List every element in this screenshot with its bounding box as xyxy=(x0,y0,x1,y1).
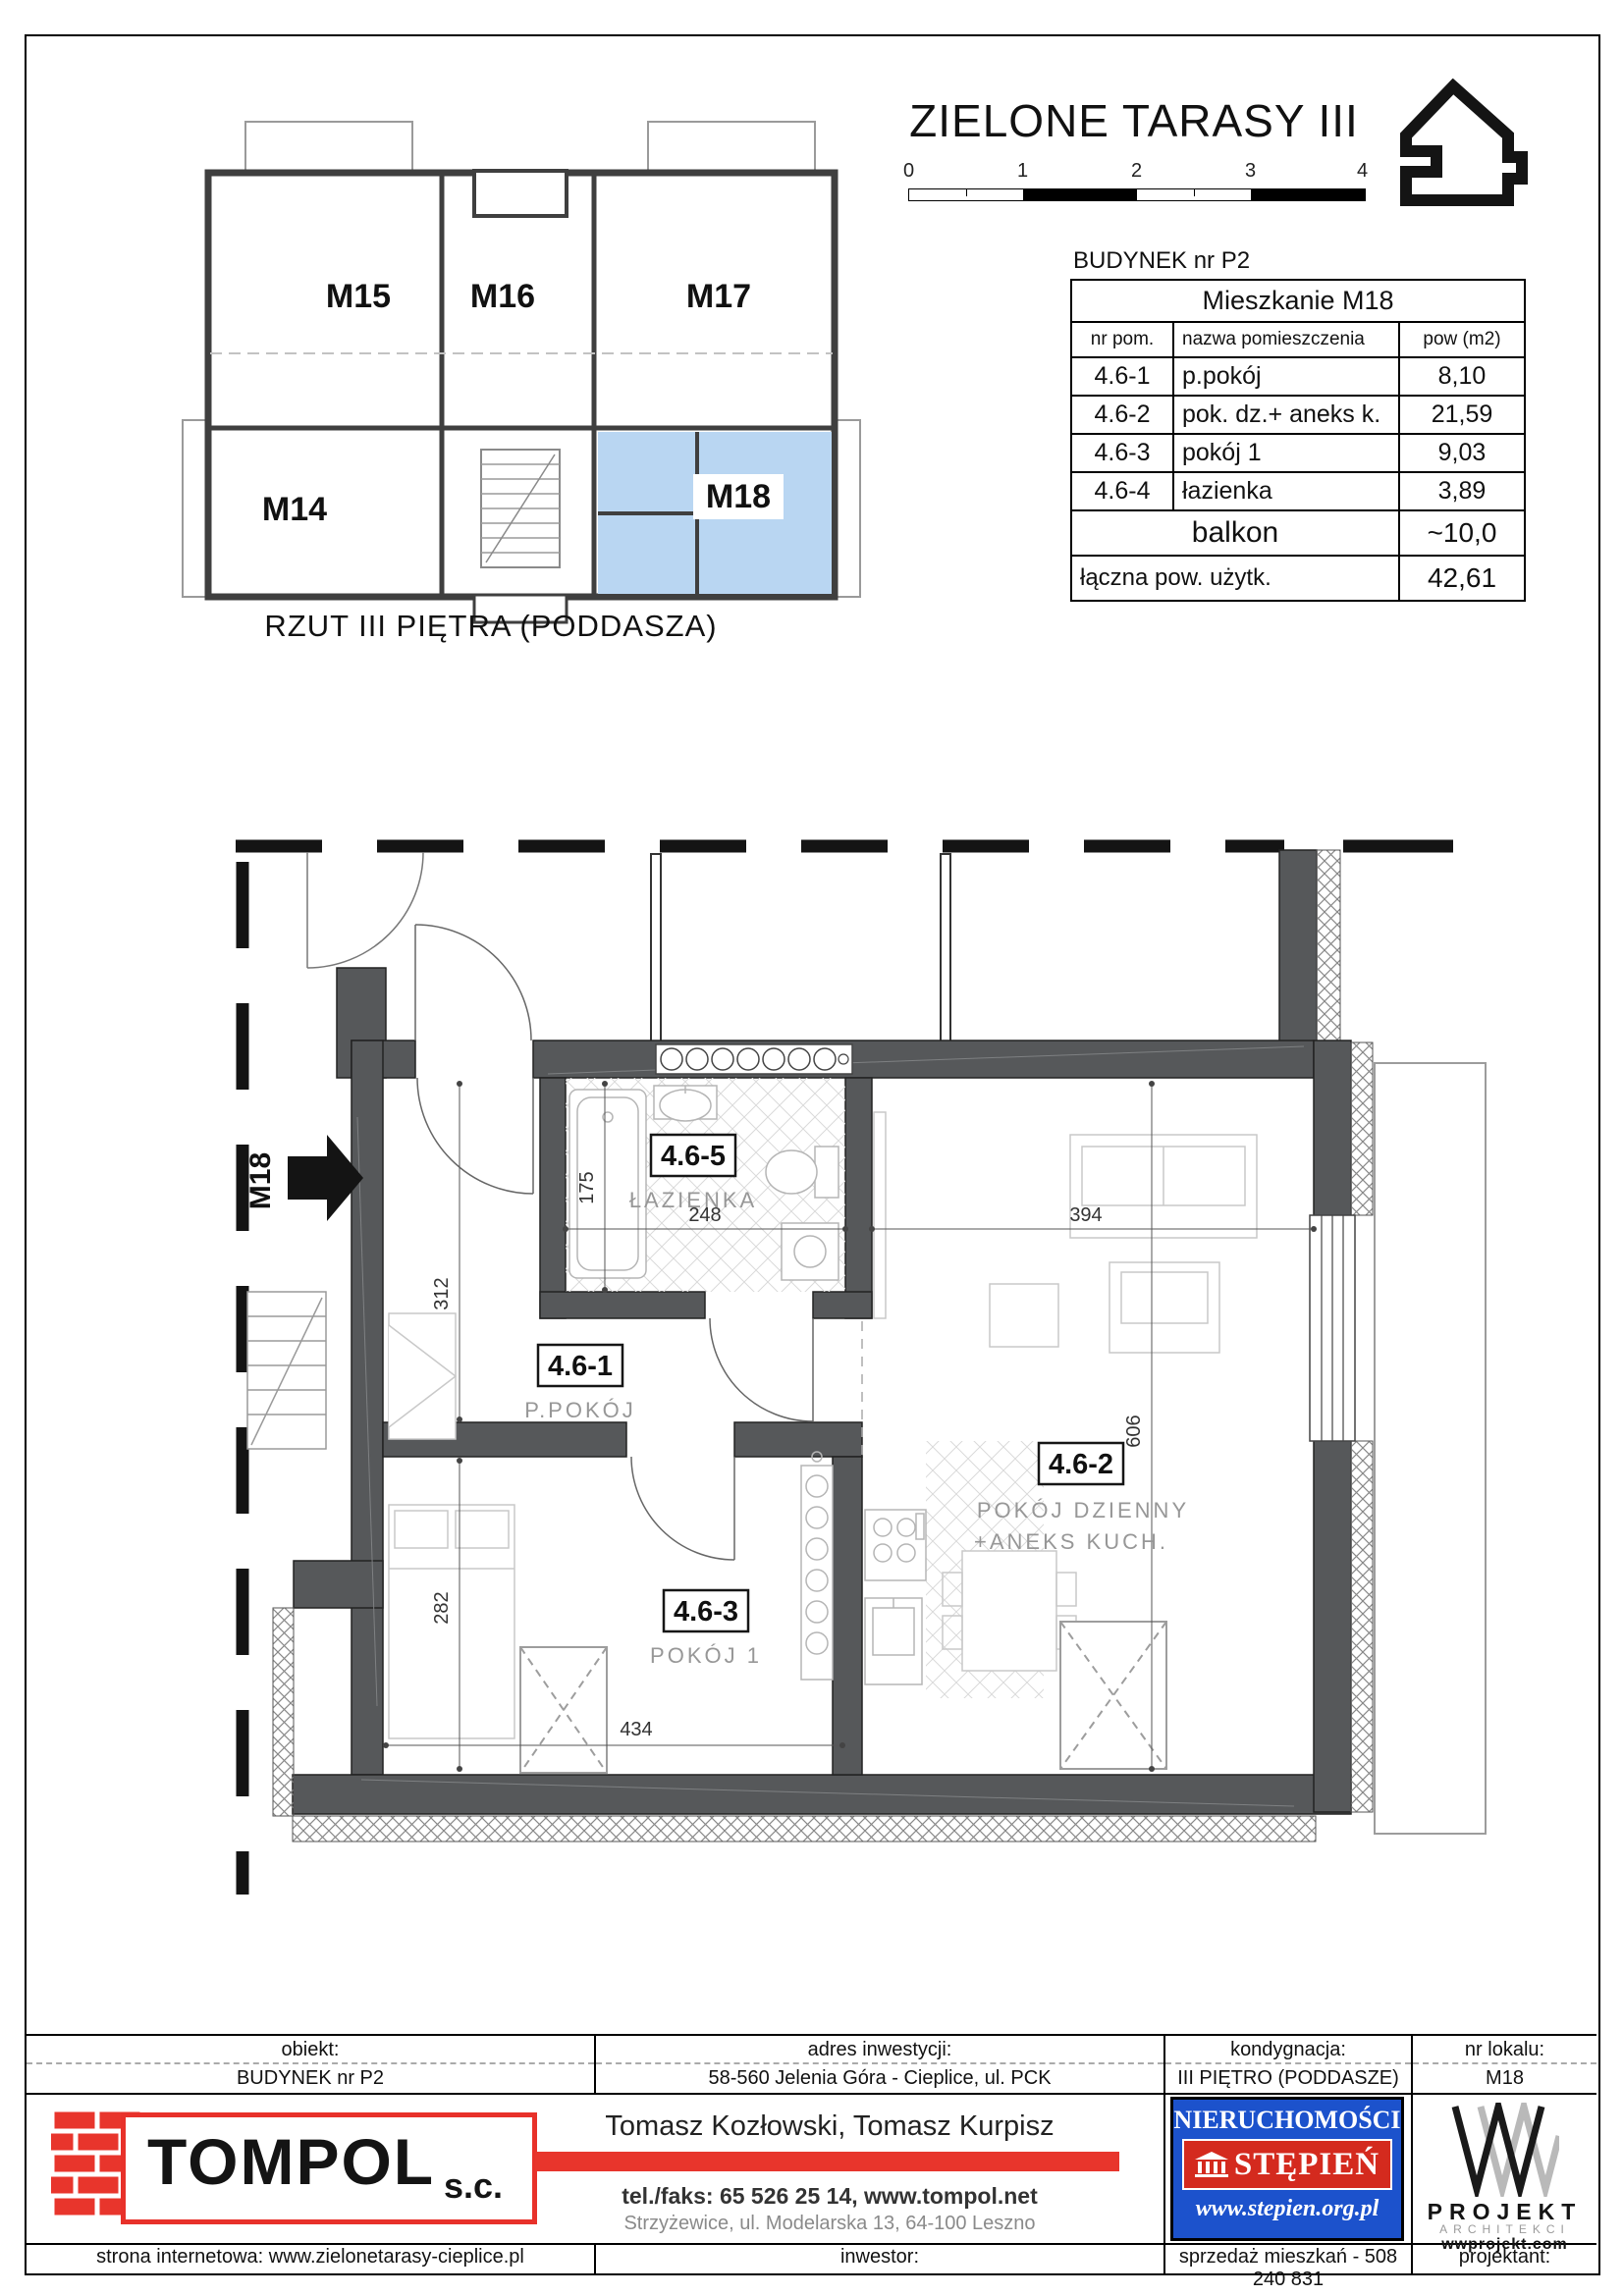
table-row: 4.6-3 pokój 1 9,03 xyxy=(1071,434,1525,472)
coffee-table xyxy=(990,1284,1058,1347)
scale-seg xyxy=(1024,189,1138,200)
stepien-logo: NIERUCHOMOŚCI STĘPIEŃ www.stepien.org.pl xyxy=(1170,2097,1404,2241)
footer-website: strona internetowa: www.zielonetarasy-ci… xyxy=(27,2246,594,2269)
balcony-window xyxy=(1310,1215,1355,1441)
hall-wardrobe xyxy=(389,1313,456,1439)
tompol-suffix: s.c. xyxy=(444,2165,503,2207)
field-obiekt-value: BUDYNEK nr P2 xyxy=(27,2067,594,2090)
overview-floorplan: M15 M16 M17 M14 M18 xyxy=(147,96,893,631)
cell-balkon-area: ~10,0 xyxy=(1399,510,1525,556)
footer-projektant: projektant: xyxy=(1413,2246,1596,2269)
dining-table xyxy=(943,1551,1076,1671)
stepien-url: www.stepien.org.pl xyxy=(1173,2196,1401,2222)
table-row: 4.6-2 pok. dz.+ aneks k. 21,59 xyxy=(1071,396,1525,434)
table-row: 4.6-1 p.pokój 8,10 xyxy=(1071,357,1525,396)
kitchen-sink xyxy=(865,1598,922,1684)
washbasin xyxy=(654,1086,717,1121)
wprojekt-sub: ARCHITEKCI xyxy=(1411,2222,1598,2236)
stepien-line2: STĘPIEŃ xyxy=(1234,2147,1380,2183)
room-name: +ANEKS KUCH. xyxy=(974,1529,1168,1554)
company-owners: Tomasz Kozłowski, Tomasz Kurpisz xyxy=(550,2110,1109,2143)
field-lokal-label: nr lokalu: xyxy=(1413,2039,1596,2061)
hob xyxy=(865,1510,926,1580)
stairwell xyxy=(247,1292,326,1449)
col-header-name: nazwa pomieszczenia xyxy=(1173,322,1399,357)
building-caption: BUDYNEK nr P2 xyxy=(1073,247,1250,275)
tall-cabinets xyxy=(801,1452,833,1680)
toilet xyxy=(766,1147,839,1198)
dim-hall-h: 312 xyxy=(431,1277,453,1309)
footer-inwestor: inwestor: xyxy=(596,2246,1163,2269)
room-code: 4.6-5 xyxy=(661,1141,726,1172)
room-name: POKÓJ 1 xyxy=(650,1643,762,1668)
bathroom-radiator xyxy=(656,1044,852,1074)
field-kondygnacja-value: III PIĘTRO (PODDASZE) xyxy=(1165,2067,1411,2090)
room-name: ŁAZIENKA xyxy=(629,1188,757,1212)
field-obiekt-label: obiekt: xyxy=(27,2039,594,2061)
washing-machine xyxy=(782,1223,839,1280)
living-wardrobe xyxy=(1060,1622,1166,1769)
cell-name: łazienka xyxy=(1173,472,1399,510)
entry-arrow-label: M18 xyxy=(244,1152,277,1209)
apartment-table: Mieszkanie M18 nr pom. nazwa pomieszczen… xyxy=(1070,279,1526,602)
table-title: Mieszkanie M18 xyxy=(1071,280,1525,322)
scale-seg xyxy=(1252,189,1366,200)
table-row-total: łączna pow. użytk. 42,61 xyxy=(1071,556,1525,601)
table-row-balcony: balkon ~10,0 xyxy=(1071,510,1525,556)
room-label-room1: 4.6-3 POKÓJ 1 xyxy=(650,1590,762,1668)
room-code: 4.6-2 xyxy=(1049,1449,1113,1480)
overview-caption: RZUT III PIĘTRA (PODDASZA) xyxy=(226,609,756,644)
overview-label-m15: M15 xyxy=(326,278,391,315)
red-divider-bar xyxy=(535,2152,1119,2171)
room-code: 4.6-1 xyxy=(548,1351,613,1382)
wprojekt-name: PROJEKT xyxy=(1411,2199,1598,2225)
col-header-nr: nr pom. xyxy=(1071,322,1173,357)
cell-name: p.pokój xyxy=(1173,357,1399,396)
scale-tick-1: 1 xyxy=(1017,160,1028,183)
wprojekt-icon xyxy=(1451,2103,1559,2197)
room-name: POKÓJ DZIENNY xyxy=(977,1498,1189,1522)
col-header-area: pow (m2) xyxy=(1399,322,1525,357)
stepien-line1: NIERUCHOMOŚCI xyxy=(1173,2106,1401,2135)
room-code: 4.6-3 xyxy=(674,1596,738,1628)
house-icon xyxy=(1382,79,1530,211)
cell-area: 3,89 xyxy=(1399,472,1525,510)
table-row: 4.6-4 łazienka 3,89 xyxy=(1071,472,1525,510)
tompol-name: TOMPOL xyxy=(147,2124,435,2199)
field-lokal-value: M18 xyxy=(1413,2067,1596,2090)
room1-door xyxy=(631,1457,734,1560)
company-address: Strzyżewice, ul. Modelarska 13, 64-100 L… xyxy=(550,2213,1109,2235)
main-floorplan: M18 xyxy=(214,823,1490,1907)
cell-area: 21,59 xyxy=(1399,396,1525,434)
field-kondygnacja-label: kondygnacja: xyxy=(1165,2039,1411,2061)
tv-panel xyxy=(874,1112,886,1318)
scale-bar xyxy=(908,188,1366,201)
bathroom-door xyxy=(710,1318,813,1421)
room-name: P.POKÓJ xyxy=(524,1398,636,1422)
overview-label-m17: M17 xyxy=(686,278,751,315)
field-adres-value: 58-560 Jelenia Góra - Cieplice, ul. PCK xyxy=(596,2067,1163,2090)
armchair xyxy=(1109,1262,1219,1353)
footer-sales: sprzedaż mieszkań - 508 240 831 xyxy=(1165,2246,1411,2291)
dim-living-w: 394 xyxy=(1069,1204,1102,1226)
cell-nr: 4.6-2 xyxy=(1071,396,1173,434)
stepien-building-icon xyxy=(1195,2152,1228,2177)
cell-area: 9,03 xyxy=(1399,434,1525,472)
overview-label-m16: M16 xyxy=(470,278,535,315)
overview-label-m18: M18 xyxy=(706,478,771,515)
dim-room1-w: 434 xyxy=(620,1719,652,1740)
cell-total-label: łączna pow. użytk. xyxy=(1071,556,1399,601)
plan-sheet: ZIELONE TARASY III 0 1 2 3 4 xyxy=(0,0,1623,2296)
cell-total-area: 42,61 xyxy=(1399,556,1525,601)
company-phone: tel./faks: 65 526 25 14, www.tompol.net xyxy=(550,2183,1109,2210)
cell-area: 8,10 xyxy=(1399,357,1525,396)
cell-name: pokój 1 xyxy=(1173,434,1399,472)
scale-tick-4: 4 xyxy=(1357,160,1368,183)
entry-arrow: M18 xyxy=(244,1135,363,1221)
balcony-outline xyxy=(1375,1063,1486,1834)
cell-balkon: balkon xyxy=(1071,510,1399,556)
dim-living-h: 606 xyxy=(1123,1415,1145,1447)
cell-nr: 4.6-4 xyxy=(1071,472,1173,510)
cell-nr: 4.6-1 xyxy=(1071,357,1173,396)
cell-nr: 4.6-3 xyxy=(1071,434,1173,472)
dim-room1-h: 282 xyxy=(431,1591,453,1624)
corridor-door xyxy=(307,852,423,968)
cell-name: pok. dz.+ aneks k. xyxy=(1173,396,1399,434)
scale-tick-0: 0 xyxy=(903,160,914,183)
room-label-hall: 4.6-1 P.POKÓJ xyxy=(524,1345,636,1422)
dim-bath-h: 175 xyxy=(576,1171,598,1203)
scale-tick-2: 2 xyxy=(1131,160,1142,183)
scale-seg xyxy=(909,189,1024,200)
scale-tick-3: 3 xyxy=(1245,160,1256,183)
field-adres-label: adres inwestycji: xyxy=(596,2039,1163,2061)
room1-wardrobe xyxy=(520,1647,607,1773)
page-title: ZIELONE TARASY III xyxy=(889,94,1380,147)
overview-label-m14: M14 xyxy=(262,491,327,528)
entrance-doors xyxy=(415,925,533,1194)
scale-seg xyxy=(1137,189,1252,200)
